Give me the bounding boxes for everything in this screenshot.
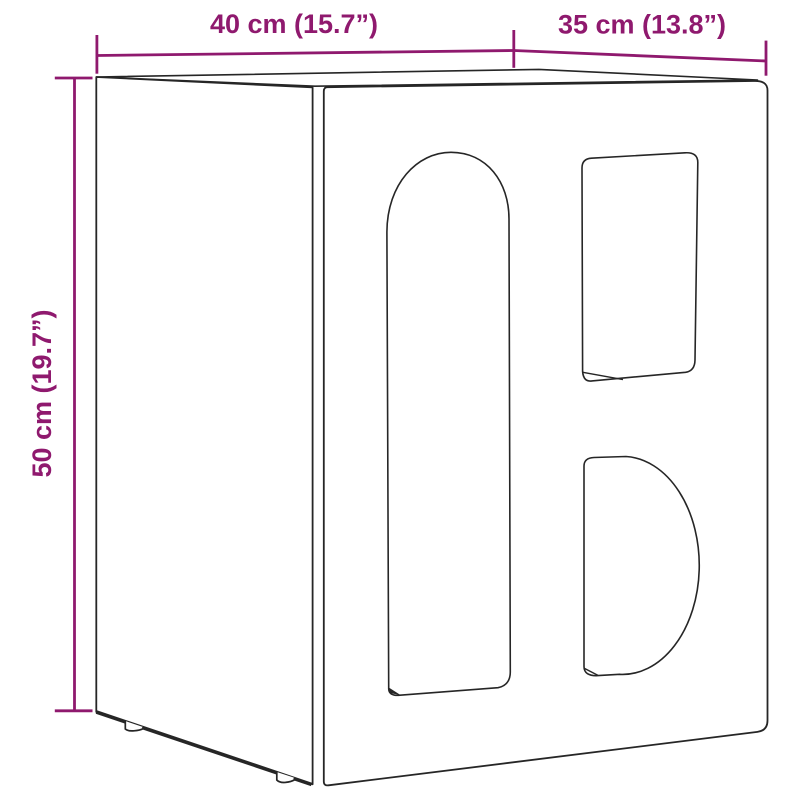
svg-text:50 cm (19.7”): 50 cm (19.7”)	[27, 309, 57, 477]
svg-text:40 cm (15.7”): 40 cm (15.7”)	[210, 9, 378, 39]
svg-text:35 cm (13.8”): 35 cm (13.8”)	[558, 10, 726, 40]
